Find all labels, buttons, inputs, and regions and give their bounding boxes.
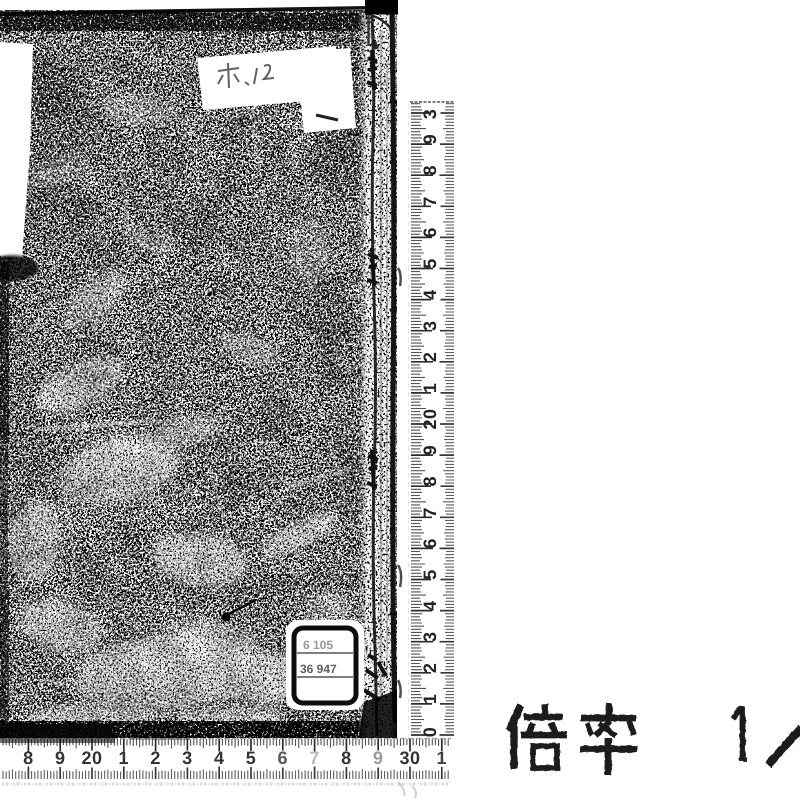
svg-text:5: 5 [246,748,257,768]
svg-text:4: 4 [214,748,225,768]
svg-text:30: 30 [399,748,420,768]
svg-text:9: 9 [55,748,66,768]
svg-text:8: 8 [23,748,34,768]
svg-text:7: 7 [420,507,440,518]
svg-text:2: 2 [420,663,440,674]
svg-text:20: 20 [81,748,102,768]
svg-text:0: 0 [420,727,440,738]
svg-text:7: 7 [309,748,320,768]
svg-text:9: 9 [420,445,440,456]
svg-text:1: 1 [437,748,448,768]
svg-text:20: 20 [420,408,440,429]
svg-text:3: 3 [420,109,440,120]
svg-text:6: 6 [420,227,440,238]
svg-text:7: 7 [420,196,440,207]
svg-text:4: 4 [420,600,440,611]
svg-text:9: 9 [373,748,384,768]
svg-text:1: 1 [119,748,130,768]
svg-text:8: 8 [420,165,440,176]
svg-text:1: 1 [420,383,440,394]
svg-text:8: 8 [341,748,352,768]
svg-text:6 105: 6 105 [303,638,333,652]
svg-text:3: 3 [420,320,440,331]
svg-text:6: 6 [278,748,289,768]
svg-text:8: 8 [420,476,440,487]
svg-text:3: 3 [420,631,440,642]
svg-text:3: 3 [182,748,193,768]
svg-text:36 947: 36 947 [300,662,337,676]
svg-text:5: 5 [420,569,440,580]
svg-text:5: 5 [420,258,440,269]
svg-text:6: 6 [420,538,440,549]
svg-text:9: 9 [420,134,440,145]
svg-text:4: 4 [420,289,440,300]
svg-text:2: 2 [420,352,440,363]
svg-text:1: 1 [420,694,440,705]
svg-text:2: 2 [150,748,161,768]
